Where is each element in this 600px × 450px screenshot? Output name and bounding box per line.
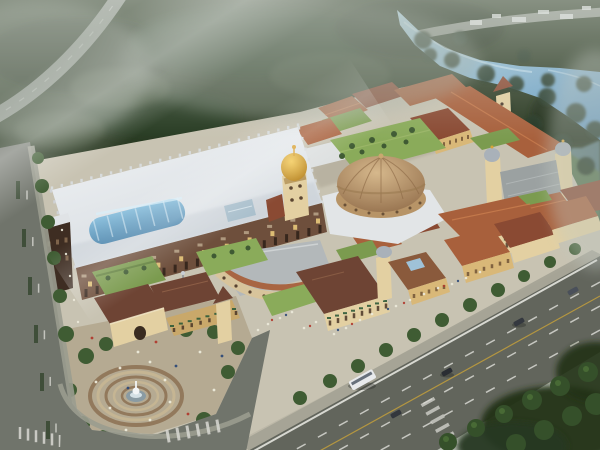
tree-row	[578, 362, 598, 382]
facade-arches	[196, 259, 199, 267]
awnings	[205, 315, 209, 317]
arcade-arches	[173, 328, 176, 332]
facade-windows	[475, 269, 478, 273]
terrace-tree	[246, 246, 251, 251]
facade-ornament-row	[244, 231, 249, 234]
pedestrian	[125, 429, 128, 432]
crosswalk	[27, 429, 30, 441]
drum-windows	[355, 209, 358, 212]
gold-tower-arches	[290, 198, 294, 202]
lane-dashes	[49, 377, 51, 386]
shopper-crowd	[465, 277, 468, 280]
turret-dome	[376, 246, 392, 258]
facade-windows	[467, 272, 470, 276]
facade-arches	[285, 234, 288, 242]
facade-windows	[483, 267, 486, 271]
terrace-tree	[230, 250, 235, 255]
street-tree	[293, 391, 307, 405]
east-tower-dome	[484, 148, 500, 162]
parapet-crenellation	[189, 151, 191, 154]
drum-windows	[409, 207, 412, 210]
road-median	[28, 277, 32, 295]
arcade-arches	[234, 284, 237, 287]
rendering-canvas	[0, 0, 600, 450]
parapet-crenellation	[149, 161, 151, 164]
shopper-crowd	[257, 329, 260, 332]
shopper-crowd	[359, 319, 362, 322]
pedestrian	[91, 337, 94, 340]
road-median	[46, 421, 50, 439]
shopper-crowd	[337, 329, 339, 331]
tree-highlight	[443, 436, 449, 442]
road-median	[40, 373, 44, 391]
drum-windows	[382, 213, 385, 216]
arcade-arches	[182, 326, 185, 330]
facade-ornament-row	[314, 213, 319, 216]
arcade-arches	[222, 276, 225, 279]
tree-highlight	[471, 422, 477, 428]
street-tree	[407, 328, 421, 342]
shopper-crowd	[443, 285, 445, 287]
drum-windows	[368, 212, 371, 215]
street-tree	[351, 359, 365, 373]
tree-highlight	[583, 366, 589, 372]
shopper-crowd	[437, 287, 440, 290]
shopper-crowd	[315, 321, 318, 324]
tree-highlight	[499, 408, 505, 414]
fog-bank	[120, 0, 480, 120]
facade-lit-windows	[270, 231, 274, 236]
shopper-crowd	[285, 314, 287, 316]
shopper-crowd	[333, 333, 336, 336]
awnings	[327, 317, 331, 319]
facade-arches	[329, 321, 332, 326]
facade-arches	[296, 231, 299, 239]
parapet-crenellation	[179, 154, 181, 157]
terrace-tree	[212, 254, 217, 259]
parapet-crenellation	[314, 179, 316, 182]
facade-arches	[369, 308, 372, 313]
shopper-crowd	[279, 317, 282, 320]
corner-turret	[216, 300, 232, 344]
tree-row	[534, 420, 554, 440]
pedestrian	[73, 299, 75, 301]
plaza-tree	[78, 348, 94, 364]
parapet-crenellation	[198, 149, 200, 152]
facade-arches	[361, 311, 364, 316]
tower-openings	[56, 240, 59, 245]
shopper-crowd	[371, 313, 374, 316]
facade-arches	[337, 318, 340, 323]
arcade-arches	[190, 323, 193, 327]
pedestrian	[119, 367, 122, 370]
facade-arches	[307, 228, 310, 236]
facade-ornament-row	[221, 237, 226, 240]
pedestrian	[213, 389, 216, 392]
shopper-crowd	[267, 323, 270, 326]
parapet-crenellation	[130, 166, 132, 169]
east-tower-finial	[491, 146, 494, 149]
parapet-crenellation	[100, 174, 102, 177]
drum-windows	[419, 202, 422, 205]
street-tree	[463, 298, 477, 312]
facade-windows	[499, 262, 502, 266]
shopper-crowd	[351, 323, 353, 325]
parapet-crenellation	[169, 156, 171, 159]
facade-arches	[319, 225, 322, 233]
tower-finial-ball	[181, 271, 185, 275]
pedestrian	[149, 419, 152, 422]
pedestrian	[164, 379, 167, 382]
east-tower	[485, 156, 502, 204]
gold-tower-arches	[299, 196, 303, 200]
tree-row	[562, 406, 582, 426]
dome-cap	[379, 154, 384, 159]
entrance-arch	[134, 326, 146, 340]
facade-windows	[507, 259, 510, 263]
plaza-tree	[99, 337, 113, 351]
awnings	[335, 315, 339, 317]
awnings	[170, 325, 174, 327]
shopper-crowd	[309, 325, 311, 327]
pedestrian	[221, 355, 224, 358]
shop-turret	[376, 254, 392, 302]
street-tree	[58, 326, 74, 342]
facade-arches	[274, 237, 277, 245]
street-tree	[53, 289, 67, 303]
facade-lit-windows	[316, 219, 320, 224]
pedestrian	[199, 351, 202, 354]
awnings	[343, 312, 347, 314]
pedestrian	[149, 361, 152, 364]
facade-windows	[413, 294, 416, 298]
facade-arches	[263, 240, 266, 248]
lane-dashes	[38, 284, 40, 293]
parapet-crenellation	[120, 169, 122, 172]
facade-arches	[353, 313, 356, 318]
crosswalk	[43, 432, 46, 444]
street-tree	[435, 313, 449, 327]
awnings	[188, 320, 192, 322]
arcade-arches	[208, 318, 211, 322]
awnings	[367, 305, 371, 307]
facade-ornament-row	[267, 225, 272, 228]
drum-windows	[344, 204, 347, 207]
tree-highlight	[555, 380, 561, 386]
garden-tree	[360, 150, 365, 155]
parapet-crenellation	[80, 179, 82, 182]
facade-windows	[449, 140, 451, 144]
tree-highlight	[527, 394, 533, 400]
street-tree	[323, 374, 337, 388]
facade-lit-windows	[293, 225, 297, 230]
pedestrian	[77, 321, 79, 323]
shopper-crowd	[387, 308, 389, 310]
plaza-tree	[221, 365, 235, 379]
awnings	[375, 302, 379, 304]
awnings	[351, 310, 355, 312]
parapet-crenellation	[70, 181, 72, 184]
road-median	[34, 325, 38, 343]
parapet-crenellation	[90, 176, 92, 179]
pedestrian	[109, 407, 112, 410]
crosswalk	[35, 430, 38, 442]
tree-row	[550, 376, 570, 396]
facade-arches	[185, 262, 188, 270]
awnings	[232, 308, 236, 310]
arcade-arches	[235, 311, 238, 315]
tree-row	[495, 405, 513, 423]
street-tree	[491, 283, 505, 297]
arcade-arches	[199, 321, 202, 325]
street-tree	[41, 215, 55, 229]
shopper-crowd	[395, 305, 398, 308]
awnings	[179, 323, 183, 325]
crosswalk	[51, 433, 54, 445]
shopper-crowd	[423, 293, 426, 296]
street-tree	[544, 256, 556, 268]
pedestrian	[127, 387, 130, 390]
parapet-crenellation	[159, 159, 161, 162]
facade-windows	[420, 292, 423, 296]
shopper-crowd	[303, 327, 306, 330]
pedestrian	[155, 341, 158, 344]
shopper-crowd	[451, 283, 454, 286]
awnings	[359, 307, 363, 309]
pedestrian	[187, 413, 190, 416]
plaza-tree	[231, 341, 245, 355]
street-tree	[379, 343, 393, 357]
lane-dashes	[55, 424, 57, 433]
facade-windows	[491, 264, 494, 268]
street-tree	[518, 270, 530, 282]
road-median	[22, 229, 26, 247]
facade-arches	[345, 316, 348, 321]
shopper-crowd	[457, 280, 459, 282]
awnings	[197, 318, 201, 320]
shopper-crowd	[291, 311, 294, 314]
arcade-arches	[248, 290, 251, 293]
parapet-crenellation	[53, 200, 55, 203]
pedestrian	[95, 381, 98, 384]
lane-dashes	[32, 237, 34, 246]
shopper-crowd	[271, 319, 273, 321]
garden-tree	[382, 144, 387, 149]
garden-tree	[404, 140, 409, 145]
shopper-crowd	[409, 299, 412, 302]
parapet-crenellation	[318, 190, 320, 193]
parapet-crenellation	[139, 164, 141, 167]
pedestrian	[137, 351, 140, 354]
drum-windows	[396, 211, 399, 214]
shopper-crowd	[345, 327, 348, 330]
pedestrian	[175, 365, 178, 368]
pedestrian	[169, 401, 172, 404]
aerial-rendering	[0, 0, 600, 450]
shopper-crowd	[479, 271, 482, 274]
facade-windows	[428, 290, 431, 294]
parapet-crenellation	[57, 211, 59, 214]
parapet-crenellation	[110, 171, 112, 174]
tree-row	[467, 419, 485, 437]
lane-dashes	[44, 330, 46, 339]
shopper-crowd	[403, 302, 405, 304]
facade-arches	[377, 306, 380, 311]
pedestrian	[61, 229, 63, 231]
crosswalk	[19, 427, 22, 439]
tree-row	[522, 390, 542, 410]
facade-arches	[385, 304, 388, 309]
